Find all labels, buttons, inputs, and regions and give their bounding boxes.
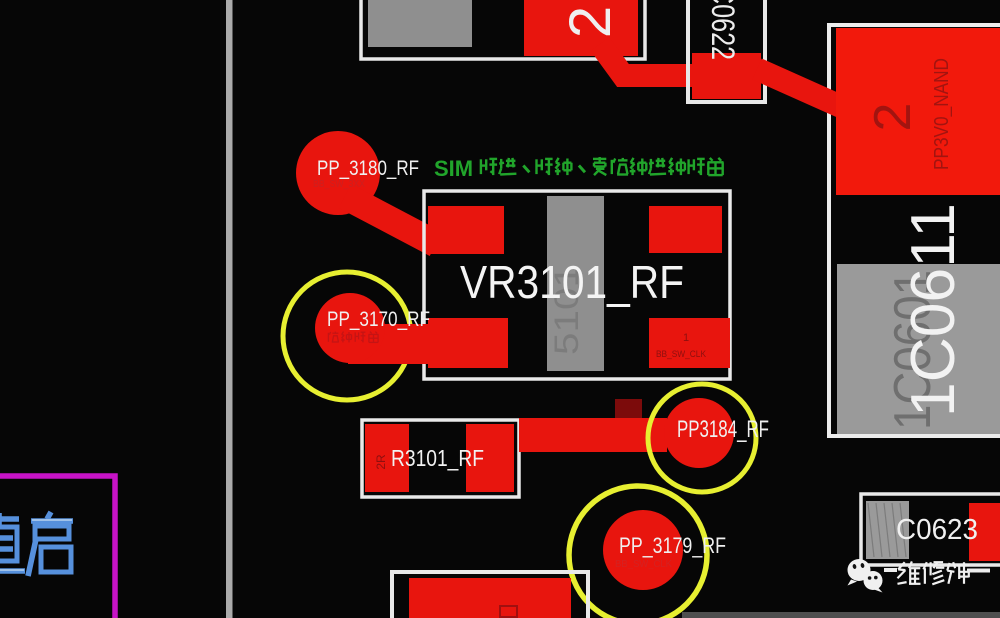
svg-text:VR3101_RF: VR3101_RF: [460, 256, 684, 308]
svg-text:PP3V0_NAND: PP3V0_NAND: [931, 58, 953, 170]
svg-text:PP_3180_RF: PP_3180_RF: [317, 157, 419, 180]
svg-text:BB_SW_CLK: BB_SW_CLK: [656, 349, 707, 360]
svg-text:SIM: SIM: [434, 156, 473, 181]
svg-text:PP3184_RF: PP3184_RF: [677, 416, 769, 443]
svg-text:2: 2: [558, 6, 623, 38]
svg-text:BB_SW_CLK: BB_SW_CLK: [615, 559, 672, 570]
svg-text:2R: 2R: [374, 454, 388, 470]
svg-text:PP_3170_RF: PP_3170_RF: [327, 308, 430, 331]
svg-text:2: 2: [864, 103, 922, 132]
svg-text:1: 1: [683, 332, 689, 344]
svg-text:C0623: C0623: [896, 514, 978, 546]
svg-text:C0622: C0622: [705, 0, 741, 60]
svg-text:PP_3179_RF: PP_3179_RF: [619, 533, 726, 558]
svg-text:1C0611: 1C0611: [899, 203, 968, 417]
svg-text:R3101_RF: R3101_RF: [391, 445, 484, 471]
svg-text:BB_SW_3XX: BB_SW_3XX: [313, 179, 365, 190]
